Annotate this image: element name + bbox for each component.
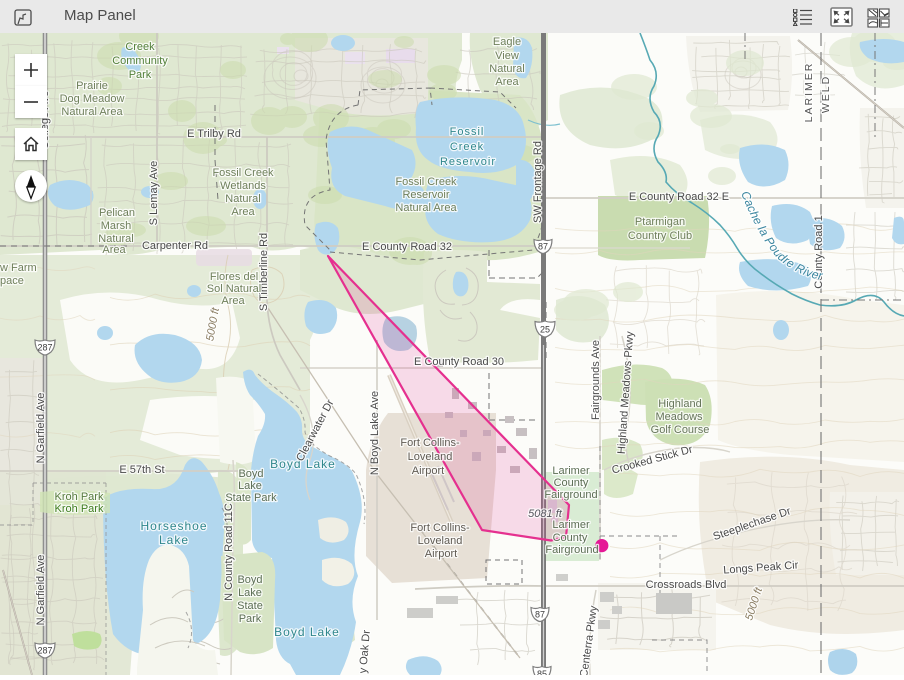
svg-text:Airport: Airport [412, 465, 444, 477]
svg-text:Airport: Airport [425, 548, 457, 560]
svg-text:Lake: Lake [238, 480, 262, 492]
svg-text:N Boyd Lake Ave: N Boyd Lake Ave [369, 391, 381, 475]
svg-text:Wetlands: Wetlands [220, 180, 266, 192]
svg-text:Fort Collins-: Fort Collins- [400, 437, 460, 449]
svg-text:Fairground: Fairground [544, 489, 597, 501]
svg-text:Lake: Lake [159, 533, 189, 547]
svg-text:S Timberline Rd: S Timberline Rd [258, 233, 270, 311]
svg-text:Fairground: Fairground [545, 544, 598, 556]
svg-text:E County Road 30: E County Road 30 [414, 356, 504, 368]
svg-text:Eagle: Eagle [493, 36, 521, 48]
svg-text:Highland: Highland [658, 398, 701, 410]
svg-text:Creek: Creek [125, 41, 155, 53]
svg-text:E 57th St: E 57th St [119, 464, 164, 476]
svg-text:Carpenter Rd: Carpenter Rd [142, 240, 208, 252]
svg-text:E Trilby Rd: E Trilby Rd [187, 128, 241, 140]
svg-text:WELD: WELD [820, 75, 832, 113]
svg-text:Fairgrounds Ave: Fairgrounds Ave [590, 340, 602, 420]
svg-text:Reservoir: Reservoir [440, 156, 496, 168]
svg-text:Kroh Park: Kroh Park [55, 491, 104, 503]
svg-text:Area: Area [102, 244, 126, 256]
svg-text:Area: Area [221, 295, 245, 307]
svg-text:Reservoir: Reservoir [402, 189, 449, 201]
svg-text:Larimer: Larimer [552, 465, 590, 477]
svg-text:Fossil Creek: Fossil Creek [212, 167, 274, 179]
svg-text:Boyd: Boyd [237, 574, 262, 586]
svg-text:State: State [237, 600, 263, 612]
svg-text:Loveland: Loveland [418, 535, 463, 547]
svg-text:Community: Community [112, 55, 168, 67]
svg-text:N County Road 11C: N County Road 11C [223, 503, 235, 601]
svg-text:Lake: Lake [238, 587, 262, 599]
svg-text:287: 287 [37, 646, 52, 656]
svg-text:Ptarmigan: Ptarmigan [635, 216, 685, 228]
svg-text:SW Frontage Rd: SW Frontage Rd [532, 141, 544, 223]
svg-text:County: County [553, 532, 588, 544]
svg-text:Larimer: Larimer [552, 519, 590, 531]
svg-text:County: County [554, 477, 589, 489]
svg-text:View: View [495, 50, 519, 62]
svg-text:Meadows: Meadows [655, 411, 703, 423]
svg-text:87: 87 [538, 242, 548, 252]
svg-text:Park: Park [239, 613, 262, 625]
svg-text:25: 25 [540, 325, 550, 335]
svg-text:5081 ft: 5081 ft [528, 508, 563, 520]
svg-text:Sol Natural: Sol Natural [207, 283, 261, 295]
svg-text:S Lemay Ave: S Lemay Ave [148, 161, 160, 226]
svg-text:287: 287 [37, 343, 52, 353]
svg-text:Loveland: Loveland [408, 451, 453, 463]
svg-text:Boyd: Boyd [238, 468, 263, 480]
svg-text:Pelican: Pelican [99, 207, 135, 219]
svg-text:Natural: Natural [225, 193, 260, 205]
svg-text:85: 85 [537, 669, 547, 675]
svg-text:LARIMER: LARIMER [803, 62, 815, 123]
svg-text:87: 87 [535, 610, 545, 620]
svg-text:Area: Area [231, 206, 255, 218]
svg-text:N Garfield Ave: N Garfield Ave [35, 393, 47, 464]
svg-text:pace: pace [0, 275, 24, 287]
svg-text:Golf Course: Golf Course [651, 424, 710, 436]
svg-text:Marsh: Marsh [101, 220, 132, 232]
svg-text:Park: Park [129, 69, 152, 81]
svg-text:Boyd Lake: Boyd Lake [274, 625, 340, 639]
svg-text:N Garfield Ave: N Garfield Ave [35, 555, 47, 626]
svg-text:Fossil Creek: Fossil Creek [395, 176, 457, 188]
svg-text:Flores del: Flores del [210, 271, 258, 283]
svg-text:Creek: Creek [450, 141, 484, 153]
svg-text:Area: Area [495, 76, 519, 88]
svg-text:Crossroads Blvd: Crossroads Blvd [646, 579, 727, 591]
svg-text:Natural: Natural [489, 63, 524, 75]
svg-text:Fort Collins-: Fort Collins- [410, 522, 470, 534]
svg-text:Kroh Park: Kroh Park [55, 503, 104, 515]
svg-text:E County Road 32: E County Road 32 [362, 241, 452, 253]
svg-text:Dog Meadow: Dog Meadow [60, 93, 125, 105]
svg-text:Prairie: Prairie [76, 80, 108, 92]
svg-text:E County Road 32 E: E County Road 32 E [629, 191, 729, 203]
svg-text:State Park: State Park [225, 492, 277, 504]
svg-text:Natural Area: Natural Area [395, 202, 457, 214]
svg-text:Natural Area: Natural Area [61, 106, 123, 118]
svg-text:Fossil: Fossil [450, 126, 485, 138]
svg-text:Horseshoe: Horseshoe [140, 519, 207, 533]
svg-text:w Farm: w Farm [0, 262, 37, 274]
svg-text:Country Club: Country Club [628, 230, 692, 242]
